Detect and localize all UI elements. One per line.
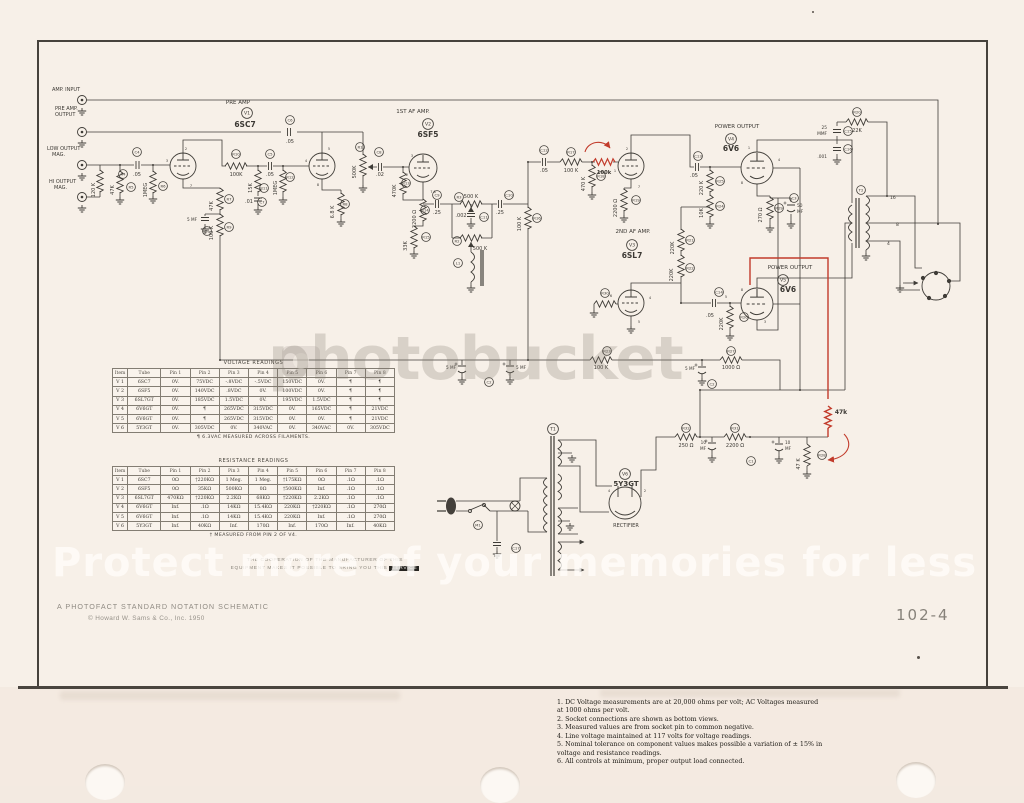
scanned-schematic-page: { "page": { "catalog_number": "102-4", "… [0, 0, 1024, 786]
table-cell: 5Y3GT [128, 424, 161, 433]
photofact-footer: A PHOTOFACT STANDARD NOTATION SCHEMATIC [57, 602, 269, 611]
table-header: Pin 1 [161, 467, 190, 476]
schematic-label: 6V6 [723, 144, 739, 153]
svg-text:C3: C3 [791, 196, 797, 201]
table-cell: 5Y3GT [128, 522, 161, 531]
table-cell: 15.4KΩ [248, 512, 277, 521]
component-ref-v3: V3 [627, 240, 638, 251]
component-ref-r16: R16 [533, 214, 542, 223]
table-cell: 40KΩ [190, 522, 219, 531]
voltage-table: ItemTubePin 1Pin 2Pin 3Pin 4Pin 5Pin 6Pi… [112, 368, 395, 433]
table-cell: 150VDC [278, 378, 307, 387]
table-cell: V 3 [113, 396, 128, 405]
schematic-label: POWER OUTPUT [715, 124, 760, 130]
table-cell: 0V. [278, 405, 307, 414]
svg-text:R3: R3 [456, 195, 462, 200]
table-cell: Inf. [161, 512, 190, 521]
table-cell: V 1 [113, 378, 128, 387]
schematic-label: 22K [852, 128, 862, 134]
schematic-label: 47k [835, 409, 848, 416]
svg-text:R2: R2 [454, 239, 460, 244]
component-ref-c4: C4 [133, 148, 142, 157]
table-row: V 46V6GT0V.¶265VDC315VDC0V.165VDC¶21VDC [113, 405, 395, 414]
component-ref-v6: V6 [620, 469, 631, 480]
table-cell: Inf. [278, 522, 307, 531]
schematic-label: 4 [649, 296, 652, 300]
schematic-label: 6SL7 [622, 251, 643, 260]
table-header: Item [113, 369, 128, 378]
schematic-label: 2ND AF AMP. [616, 229, 651, 235]
note-item: 4. Line voltage maintained at 117 volts … [557, 733, 825, 741]
table-cell: 170Ω [307, 522, 336, 531]
table-cell: 315VDC [248, 414, 277, 423]
svg-text:R17: R17 [567, 150, 575, 155]
table-cell: -.5VDC [248, 378, 277, 387]
component-ref-r10: R10 [232, 150, 241, 159]
svg-text:R25: R25 [716, 179, 724, 184]
red-arrow-47k [828, 434, 849, 460]
table-header: Pin 2 [190, 369, 219, 378]
component-ref-v2: V2 [423, 119, 434, 130]
svg-text:C1: C1 [748, 459, 754, 464]
component-ref-r25: R25 [716, 177, 725, 186]
table-cell: Inf. [307, 485, 336, 494]
table-cell: 0V. [161, 424, 190, 433]
table-header: Pin 6 [307, 369, 336, 378]
schematic-label: 5 MF [187, 217, 198, 222]
cooperation-note: THE COOPERATION OF THE MANUFACTURER OF T… [175, 557, 475, 574]
component-ref-r8: R8 [341, 200, 350, 209]
table-cell: 340VAC [307, 424, 336, 433]
table-cell: V 2 [113, 485, 128, 494]
table-cell: Inf. [219, 522, 248, 531]
table-cell: 6SC7 [128, 378, 161, 387]
table-cell: V 4 [113, 503, 128, 512]
svg-text:V1: V1 [244, 111, 250, 117]
table-cell: 2.2KΩ [219, 494, 248, 503]
table-cell: 6SC7 [128, 476, 161, 485]
schematic-label: 120 K [91, 182, 97, 197]
schematic-label: PRE AMP [226, 100, 251, 106]
table-header: Pin 3 [219, 467, 248, 476]
table-row: V 65Y3GTInf.40KΩInf.170ΩInf.170ΩInf.40KΩ [113, 522, 395, 531]
component-ref-t1: T1 [548, 424, 559, 435]
table-cell: 2.2KΩ [307, 494, 336, 503]
table-cell: 6SF5 [128, 387, 161, 396]
svg-text:R30: R30 [601, 291, 609, 296]
table-header: Pin 8 [365, 369, 394, 378]
svg-text:R11: R11 [260, 186, 268, 191]
coop-line1: THE COOPERATION OF THE MANUFACTURER OF T… [247, 558, 403, 563]
table-cell: 6SF5 [128, 485, 161, 494]
table-cell: 68KΩ [248, 494, 277, 503]
table-header: Pin 2 [190, 467, 219, 476]
table-row: V 56V6GT0V.¶265VDC315VDC0V.0V.¶21VDC [113, 414, 395, 423]
component-ref-r18: R18 [597, 172, 606, 181]
component-ref-r11: R11 [260, 184, 269, 193]
table-cell: 0V. [219, 424, 248, 433]
schematic-label: 2200 Ω [726, 443, 744, 449]
svg-text:V4: V4 [728, 137, 734, 143]
component-ref-m1: M1 [474, 521, 483, 530]
schematic-label: .001 [817, 154, 827, 160]
schematic-label: 25 [822, 125, 828, 131]
table-cell: .1Ω [336, 476, 365, 485]
table-cell: V 6 [113, 424, 128, 433]
schematic-label: 2200 Ω [412, 210, 418, 228]
table-row: V 36SL7GT470KΩ†220KΩ2.2KΩ68KΩ†220KΩ2.2KΩ… [113, 494, 395, 503]
component-ref-r30: R30 [601, 289, 610, 298]
component-ref-r15: R15 [422, 233, 431, 242]
component-ref-c2: C2 [485, 378, 494, 387]
schematic-label: 6 [610, 294, 612, 298]
amp-input-jack [78, 96, 87, 105]
table-cell: 265VDC [219, 414, 248, 423]
svg-text:V6: V6 [622, 472, 628, 478]
table-cell: V 2 [113, 387, 128, 396]
schematic-label: 1 [614, 169, 616, 173]
table-cell: †220KΩ [190, 494, 219, 503]
svg-text:R20: R20 [853, 110, 861, 115]
schematic-label: .05 [706, 313, 714, 319]
schematic-label: 15K [248, 182, 254, 192]
table-row: V 26SF50V.140VDC.8VDC0V.100VDC0V.¶¶ [113, 387, 395, 396]
table-cell: 185VDC [190, 396, 219, 405]
schematic-label: 500K [352, 165, 358, 179]
note-item: 2. Socket connections are shown as botto… [557, 716, 825, 724]
schematic-label: 1MEG [273, 181, 279, 196]
svg-text:R7: R7 [226, 197, 232, 202]
schematic-label: 4 [778, 158, 781, 162]
schematic-label: .05 [540, 168, 548, 174]
table-cell: 100VDC [278, 387, 307, 396]
svg-text:C2: C2 [486, 380, 492, 385]
table-cell: 165VDC [307, 405, 336, 414]
hi-output-mag-jack [78, 193, 87, 202]
table-cell: Inf. [336, 522, 365, 531]
svg-text:V5: V5 [780, 278, 786, 284]
component-ref-c17: C17 [512, 544, 521, 553]
table-cell: 14KΩ [219, 503, 248, 512]
schematic-label: 4 [305, 159, 308, 163]
component-ref-v5: V5 [778, 275, 789, 286]
schematic-label: 3 [764, 320, 766, 324]
svg-text:R8: R8 [342, 202, 348, 207]
table-cell: 6SL7GT [128, 396, 161, 405]
schematic-label: .25 [433, 210, 441, 216]
table-cell: ¶ [190, 414, 219, 423]
svg-text:R23: R23 [603, 349, 611, 354]
table-header: Pin 6 [307, 467, 336, 476]
svg-text:R32: R32 [682, 426, 690, 431]
table-cell: 220KΩ [278, 512, 307, 521]
table-cell: †175KΩ [278, 476, 307, 485]
table-cell: 0V. [307, 414, 336, 423]
schematic-label: 7 [638, 185, 640, 189]
schematic-label: 3 [166, 159, 168, 163]
svg-text:R24: R24 [716, 204, 724, 209]
schematic-label: 220 K [699, 180, 705, 195]
schematic-label: MMF [817, 131, 827, 137]
table-header: Pin 4 [248, 369, 277, 378]
component-ref-c7: C7 [258, 198, 267, 207]
table-cell: 14KΩ [219, 512, 248, 521]
schematic-label: 4 [608, 489, 611, 493]
table-cell: 0V. [161, 405, 190, 414]
table-cell: 1.5VDC [219, 396, 248, 405]
component-ref-v4: V4 [726, 134, 737, 145]
table-header: Pin 1 [161, 369, 190, 378]
schematic-label: AMP. INPUT [52, 87, 81, 93]
table-cell: 15.4KΩ [248, 503, 277, 512]
schematic-label: 1 [748, 146, 750, 150]
schematic-label: 100 K [564, 168, 579, 174]
component-ref-c9: C9 [433, 191, 442, 200]
svg-text:R4: R4 [120, 172, 126, 177]
table-cell: 170Ω [248, 522, 277, 531]
schematic-label: 2 [185, 147, 187, 151]
component-ref-r23: R23 [603, 347, 612, 356]
table-cell: Inf. [307, 512, 336, 521]
svg-text:C1: C1 [204, 229, 210, 234]
svg-text:R10: R10 [232, 152, 240, 157]
table-header: Pin 8 [365, 467, 394, 476]
svg-text:R29: R29 [775, 206, 783, 211]
resistance-readings-table: RESISTANCE READINGS ItemTubePin 1Pin 2Pi… [112, 458, 395, 538]
svg-text:C12: C12 [540, 148, 548, 153]
table-row: V 16SC70V.75VDC-.8VDC-.5VDC150VDC0V.¶¶ [113, 378, 395, 387]
schematic-label: 470K [392, 184, 398, 198]
svg-text:R21: R21 [686, 238, 694, 243]
schematic-label: 8 [741, 181, 743, 185]
component-ref-r3: R3 [455, 193, 464, 202]
component-ref-r24: R24 [716, 202, 725, 211]
table-cell: 21VDC [365, 414, 394, 423]
table-cell: .1Ω [365, 494, 394, 503]
table-cell: .1Ω [190, 512, 219, 521]
svg-text:C15: C15 [844, 129, 852, 134]
table-cell: .1Ω [336, 503, 365, 512]
schematic-label: 100K [230, 172, 244, 178]
schematic-label: 500 K [473, 246, 488, 252]
table-cell: †220KΩ [190, 476, 219, 485]
schematic-label: 47K [110, 184, 116, 194]
table-cell: 0V. [336, 424, 365, 433]
svg-text:C8: C8 [376, 150, 382, 155]
voltage-readings-table: VOLTAGE READINGS ItemTubePin 1Pin 2Pin 3… [112, 360, 395, 440]
component-ref-r19: R19 [632, 196, 641, 205]
component-ref-c16: C16 [844, 145, 853, 154]
svg-text:C16: C16 [844, 147, 852, 152]
schematic-label: .02 [376, 172, 384, 178]
schematic-label: MAG. [54, 185, 68, 191]
table-cell: 0V. [307, 378, 336, 387]
note-item: 6. All controls at minimum, proper outpu… [557, 758, 825, 766]
svg-text:R13: R13 [402, 181, 410, 186]
component-ref-c6: C6 [286, 116, 295, 125]
schematic-label: .25 [496, 210, 504, 216]
schematic-label: 6SC7 [234, 120, 255, 129]
table-cell: .8VDC [219, 387, 248, 396]
table-cell: V 5 [113, 414, 128, 423]
schematic-label: 47K [209, 200, 215, 210]
component-ref-r5: R5 [127, 183, 136, 192]
schematic-label: 6SF5 [418, 130, 439, 139]
component-ref-c8: C8 [375, 148, 384, 157]
schematic-label: MF [700, 446, 707, 451]
table-cell: 195VDC [278, 396, 307, 405]
component-ref-v1: V1 [242, 108, 253, 119]
red-47k-resistor [825, 406, 831, 428]
schematic-label: .05 [690, 173, 698, 179]
table-cell: 1.5VDC [307, 396, 336, 405]
schematic-label: 220K [669, 268, 675, 282]
svg-text:R27: R27 [727, 349, 735, 354]
svg-text:C11: C11 [480, 215, 488, 220]
table-cell: 315VDC [248, 405, 277, 414]
component-ref-c3: C3 [790, 194, 799, 203]
table-cell: ¶ [190, 405, 219, 414]
table-row: V 26SF50Ω35KΩ500KΩ0Ω†500KΩInf..1Ω.1Ω [113, 485, 395, 494]
component-ref-r17: R17 [567, 148, 576, 157]
schematic-label: 270 Ω [758, 207, 764, 222]
table-cell: 340VAC [248, 424, 277, 433]
schematic-label: MF [785, 446, 792, 451]
schematic-label: 5 MF [685, 366, 696, 371]
schematic-label: 250 Ω [679, 443, 694, 449]
svg-text:R16: R16 [533, 216, 541, 221]
table-header: Pin 4 [248, 467, 277, 476]
table-cell: 265VDC [219, 405, 248, 414]
table-cell: 6V6GT [128, 503, 161, 512]
table-cell: Inf. [161, 503, 190, 512]
table-cell: 0V. [278, 424, 307, 433]
note-item: 1. DC Voltage measurements are at 20,000… [557, 699, 825, 716]
schematic-label: 8 [896, 222, 899, 228]
component-ref-t2: T2 [857, 186, 866, 195]
table-header: Item [113, 467, 128, 476]
table-header: Pin 5 [278, 467, 307, 476]
svg-text:R5: R5 [128, 185, 134, 190]
table-header: Tube [128, 467, 161, 476]
resistance-table: ItemTubePin 1Pin 2Pin 3Pin 4Pin 5Pin 6Pi… [112, 466, 395, 531]
power-switch [470, 504, 490, 511]
table-cell: ¶ [365, 387, 394, 396]
schematic-label: 220K [719, 317, 725, 331]
schematic-label: 5Y3GT [613, 480, 638, 488]
svg-text:R15: R15 [422, 235, 430, 240]
table-cell: 305VDC [365, 424, 394, 433]
table-cell: †220KΩ [278, 494, 307, 503]
table-cell: V 1 [113, 476, 128, 485]
table-cell: .1Ω [365, 476, 394, 485]
table-cell: 0V. [161, 396, 190, 405]
svg-text:V2: V2 [425, 122, 431, 128]
table-cell: V 4 [113, 405, 128, 414]
schematic-label: 2 [644, 489, 646, 493]
schematic-label: POWER OUTPUT [768, 265, 813, 271]
schematic-label: 1MEG [143, 183, 149, 198]
schematic-label: OUTPUT [55, 112, 76, 118]
schematic-label: 220K [670, 241, 676, 255]
component-ref-r28: R28 [818, 451, 827, 460]
table-header: Pin 3 [219, 369, 248, 378]
svg-text:T2: T2 [858, 188, 864, 193]
schematic-label: 2 [406, 173, 408, 177]
table-header: Pin 7 [336, 369, 365, 378]
table-cell: †500KΩ [278, 485, 307, 494]
component-ref-c14: C14 [715, 288, 724, 297]
component-ref-r6: R6 [159, 182, 168, 191]
schematic-label: 100 K [594, 365, 609, 371]
table-row: V 56V6GTInf..1Ω14KΩ15.4KΩ220KΩInf..1Ω270… [113, 512, 395, 521]
component-ref-r20: R20 [853, 108, 862, 117]
component-ref-c2: C2 [708, 380, 717, 389]
table-cell: 6V6GT [128, 512, 161, 521]
svg-text:R6: R6 [160, 184, 166, 189]
table-cell: 0V. [161, 387, 190, 396]
table-cell: 75VDC [190, 378, 219, 387]
schematic-label: 8 [741, 288, 743, 292]
schematic-label: 10K [699, 207, 705, 217]
table-cell: 6V6GT [128, 414, 161, 423]
component-ref-r2: R2 [453, 237, 462, 246]
svg-text:V3: V3 [629, 243, 635, 249]
schematic-label: 1ST AF AMP. [396, 109, 430, 115]
svg-text:R28: R28 [818, 453, 826, 458]
table-cell: 1 Meg. [219, 476, 248, 485]
schematic-label: .05 [133, 172, 141, 178]
schematic-label: 10 [785, 440, 791, 445]
svg-text:C2: C2 [709, 382, 715, 387]
punch-hole [85, 764, 125, 800]
svg-text:R26: R26 [740, 315, 748, 320]
svg-text:C17: C17 [512, 546, 520, 551]
table-cell: -.8VDC [219, 378, 248, 387]
schematic-label: 5 [328, 147, 330, 151]
component-ref-c10: C10 [505, 191, 514, 200]
schematic-label: MAG. [52, 152, 66, 158]
red-100k-resistor [593, 159, 615, 165]
table-cell: 0Ω [307, 476, 336, 485]
table-cell: 0V. [307, 387, 336, 396]
svg-text:R1: R1 [357, 145, 363, 150]
schematic-label: 500 K [464, 194, 479, 200]
coop-line2: EQUIPMENT MAKES IT POSSIBLE TO BRING YOU… [231, 566, 390, 571]
voltage-table-footnote: ¶ 6.3VAC MEASURED ACROSS FILAMENTS. [112, 435, 395, 440]
schematic-label: 100 K [517, 216, 523, 231]
svg-text:R12: R12 [286, 175, 294, 180]
table-header: Tube [128, 369, 161, 378]
resistance-table-footnote: † MEASURED FROM PIN 2 OF V4. [112, 533, 395, 538]
table-cell: ¶ [336, 378, 365, 387]
schematic-label: 5 MF [446, 365, 457, 370]
table-cell: 470KΩ [161, 494, 190, 503]
schematic-label: 5 MF [516, 365, 527, 370]
note-item: 5. Nominal tolerance on component values… [557, 741, 825, 758]
table-cell: 21VDC [365, 405, 394, 414]
schematic-label: .002 [455, 213, 466, 219]
component-ref-c1: C1 [747, 457, 756, 466]
table-cell: V 6 [113, 522, 128, 531]
table-cell: †220KΩ [307, 503, 336, 512]
table-cell: ¶ [365, 396, 394, 405]
component-ref-r9: R9 [225, 223, 234, 232]
catalog-number: 102-4 [896, 606, 950, 624]
copyright-footer: © Howard W. Sams & Co., Inc. 1950 [88, 615, 205, 622]
svg-text:C10: C10 [505, 193, 513, 198]
component-ref-c5: C5 [266, 150, 275, 159]
